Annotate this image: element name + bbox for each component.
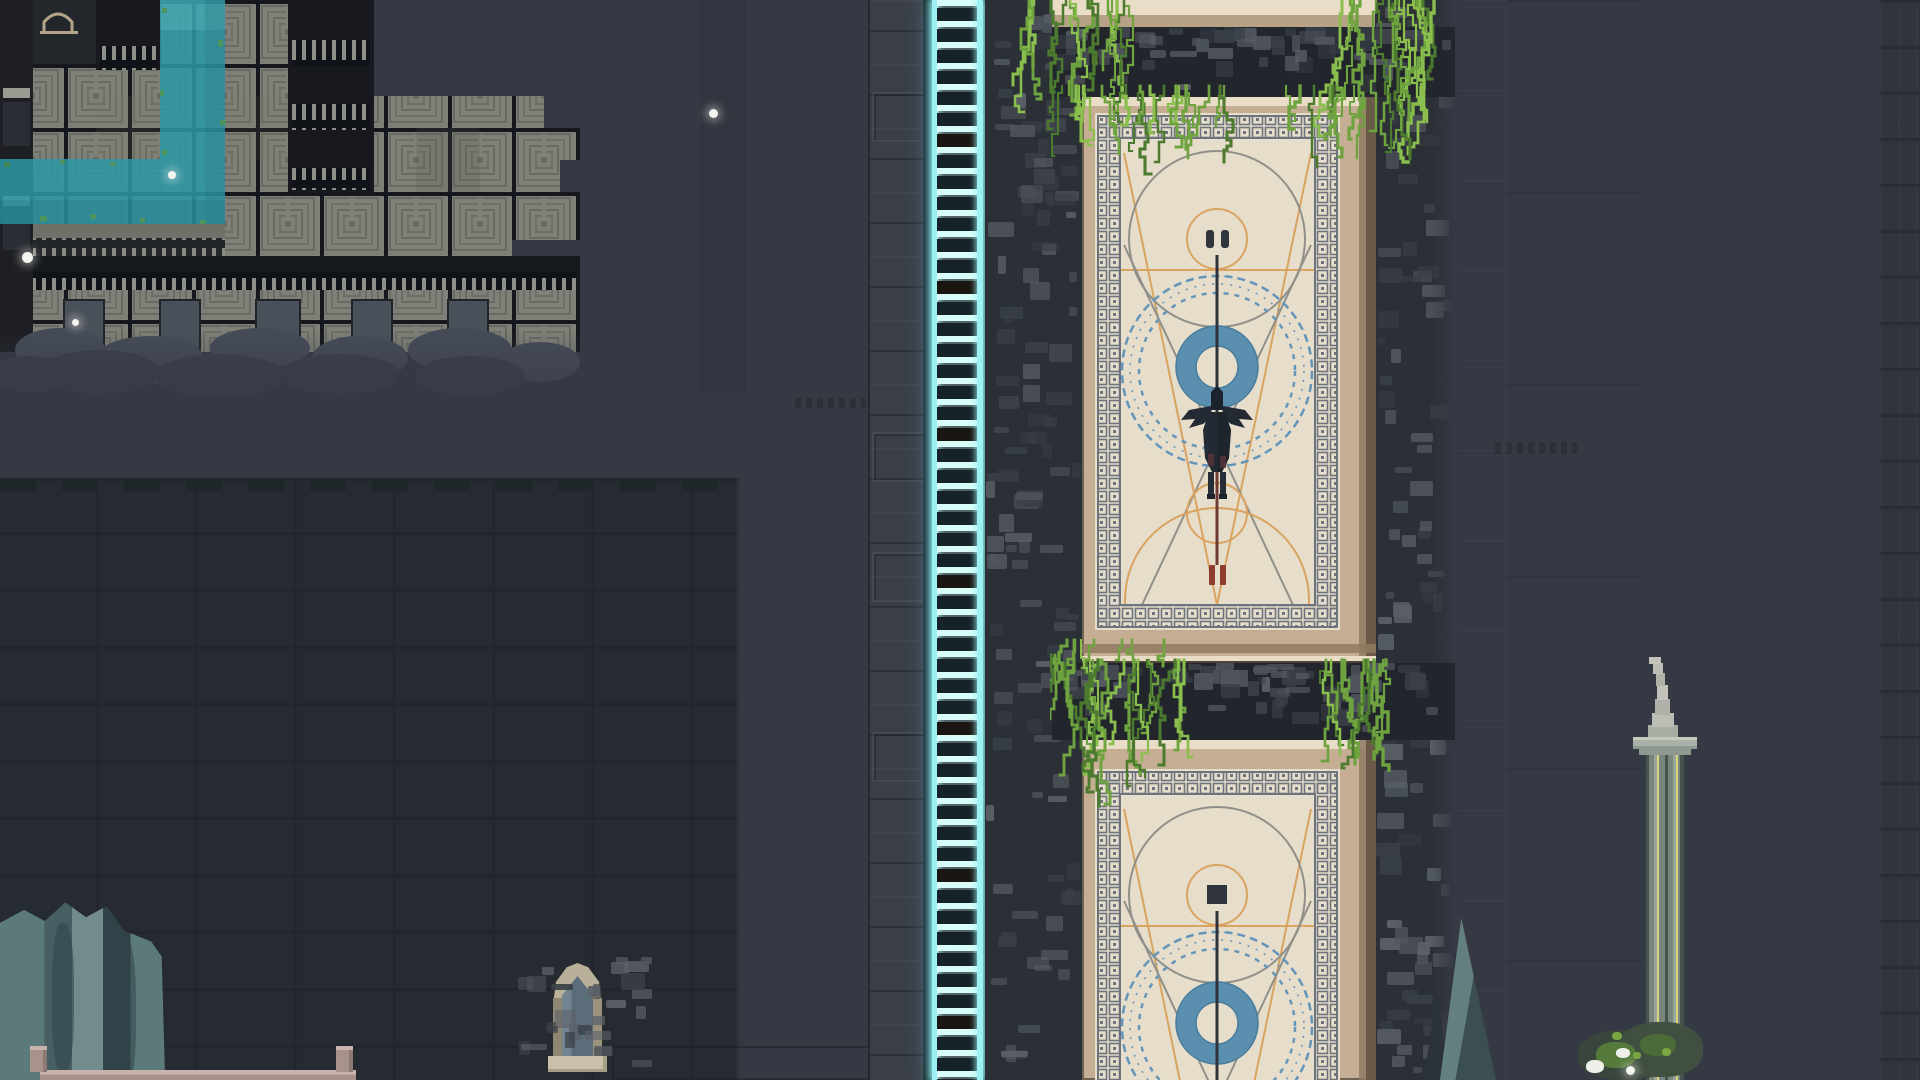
vine-strand: [1155, 86, 1164, 162]
white-flower: [1586, 1060, 1604, 1073]
cobble-stone: [1403, 242, 1417, 256]
cobble-stone: [1443, 300, 1455, 311]
cobble-stone: [1426, 302, 1444, 318]
vine-strand: [1370, 0, 1376, 131]
cobble-stone: [1048, 875, 1064, 882]
cobble-stone: [521, 1044, 547, 1050]
stone-railing: [40, 1070, 356, 1080]
cobble-stone: [1005, 447, 1027, 454]
cobble-stone: [1377, 1029, 1401, 1044]
ladder-dark-bands: [937, 0, 978, 1080]
hanging-vines: [1050, 635, 1470, 850]
cobble-stone: [1418, 942, 1430, 955]
vine-strand: [1116, 640, 1122, 660]
cobble-stone: [999, 396, 1019, 409]
cobble-stone: [1022, 203, 1034, 216]
cobble-stone: [994, 692, 1013, 704]
cobble-stone: [1006, 1045, 1016, 1062]
cobble-stone: [565, 1032, 575, 1048]
cobble-stone: [1032, 792, 1043, 798]
winged-character[interactable]: [1179, 384, 1255, 512]
cobble-stone: [1069, 272, 1077, 282]
cobble-stone: [1072, 463, 1081, 478]
cobble-stone: [1037, 210, 1050, 226]
cobble-stone: [1422, 285, 1445, 297]
cobble-stone: [1380, 857, 1402, 875]
cobble-stone: [1391, 349, 1401, 363]
cobble-stone: [1380, 376, 1392, 385]
cobble-stone: [1046, 916, 1063, 931]
cobble-stone: [1430, 405, 1449, 419]
cobble-stone: [636, 1006, 646, 1019]
statue: [1640, 655, 1692, 739]
vine-strand: [1188, 86, 1209, 158]
embossed-panel: [872, 92, 930, 142]
light-sprite[interactable]: [168, 171, 176, 179]
cobble-stone: [1379, 268, 1402, 283]
cobble-stone: [1433, 953, 1453, 967]
cobble-stone: [1005, 533, 1032, 542]
cobble-stone: [547, 1026, 558, 1033]
cobble-stone: [996, 649, 1012, 660]
vine-strand: [1106, 660, 1124, 744]
cobble-stone: [1012, 911, 1038, 919]
cobble-stone: [1018, 1025, 1040, 1033]
square-glyph: [1207, 885, 1227, 904]
embossed-panel: [872, 552, 930, 602]
cobble-stone: [1387, 972, 1414, 985]
cobble-stone: [1023, 268, 1039, 283]
cobble-stone: [621, 973, 645, 990]
light-sprite[interactable]: [72, 319, 79, 326]
cobble-stone: [1406, 995, 1433, 1004]
cobble-stone: [1377, 337, 1385, 345]
cobble-stone: [1378, 248, 1401, 257]
cobble-stone: [606, 1000, 626, 1008]
light-sprite[interactable]: [709, 109, 718, 118]
cobble-stone: [1067, 614, 1079, 620]
cobble-stone: [1058, 969, 1070, 980]
cobble-stone: [1427, 868, 1441, 881]
cobble-stone: [1389, 529, 1400, 540]
cobble-stone: [993, 738, 1012, 750]
cobble-stone: [1441, 884, 1450, 896]
cobble-stone: [990, 624, 1003, 636]
flowering-shrub: [1578, 1022, 1718, 1080]
cobble-stone: [1032, 242, 1059, 251]
cobble-stone: [1420, 521, 1432, 531]
cobble-stone: [1418, 266, 1439, 278]
faint-engraved-frame: [612, 1046, 906, 1080]
cobble-stone: [1040, 545, 1063, 553]
cobble-stone: [1061, 891, 1081, 905]
cobble-stone: [1424, 204, 1435, 213]
background-seam: [700, 0, 746, 392]
embossed-panel: [872, 732, 930, 782]
cobble-stone: [1392, 1056, 1405, 1067]
cobble-stone: [987, 536, 1004, 552]
cobble-stone: [1378, 617, 1392, 624]
cobble-stone: [1067, 863, 1080, 880]
cobble-stone: [993, 884, 1013, 894]
cobble-stone: [1426, 220, 1449, 236]
hanging-vines: [1005, 0, 1465, 200]
light-sprite[interactable]: [1626, 1066, 1635, 1075]
cobble-stone: [988, 222, 1014, 237]
cobble-stone: [1049, 344, 1072, 362]
cobble-stone: [1036, 661, 1051, 667]
glowing-ladder[interactable]: [932, 0, 983, 1080]
cobble-stone: [1054, 622, 1076, 631]
embossed-panel: [872, 432, 930, 482]
cobble-stone: [1428, 571, 1444, 577]
cobble-stone: [1020, 600, 1042, 607]
cobble-stone: [998, 469, 1018, 479]
cobble-stone: [1034, 965, 1052, 971]
cobble-stone: [998, 256, 1006, 274]
cobble-stone: [1380, 1021, 1393, 1029]
cobble-stone: [1030, 282, 1050, 300]
cobble-stone: [1417, 445, 1432, 453]
cobble-stone: [997, 711, 1012, 726]
cobble-stone: [1042, 443, 1052, 458]
cobble-stone: [994, 427, 1009, 433]
cobble-stone: [551, 984, 573, 990]
cobble-stone: [1443, 299, 1454, 308]
cobble-stone: [1066, 212, 1076, 218]
cobble-stone: [1413, 1067, 1422, 1073]
cobble-stone: [1379, 391, 1395, 408]
cobble-stone: [1004, 315, 1014, 323]
cobble-stone: [1404, 611, 1412, 619]
cobble-stone: [998, 937, 1017, 947]
cobble-stone: [542, 967, 554, 975]
grey-ruins: [0, 0, 580, 478]
background-panel-column: [1505, 0, 1642, 1080]
cobble-stone: [987, 554, 1007, 569]
ladder-rail: [977, 0, 983, 1080]
cobble-stone: [996, 376, 1019, 386]
faint-dash-marks: [795, 398, 865, 408]
column-capital-step: [1639, 749, 1691, 755]
cobble-stone: [641, 957, 652, 964]
vine-strand: [1158, 660, 1175, 765]
vine-strand: [1103, 0, 1111, 70]
cobble-stone: [1397, 1045, 1412, 1055]
cobble-stone: [1410, 481, 1433, 496]
cobble-stone: [588, 986, 600, 996]
vine-strand: [1158, 640, 1164, 666]
cobble-stone: [1023, 385, 1040, 402]
cobble-stone: [1387, 1010, 1410, 1020]
cobble-stone: [999, 514, 1014, 532]
cobble-stone: [991, 978, 1007, 985]
cobble-stone: [1046, 392, 1072, 405]
cobble-stone: [1016, 492, 1043, 500]
cobble-stone: [1378, 311, 1399, 328]
cobble-stone: [592, 1016, 605, 1025]
cobble-stone: [1385, 410, 1396, 424]
vine-strand: [1344, 660, 1350, 717]
cobble-stone: [1069, 307, 1077, 316]
cobble-stone: [1402, 535, 1416, 547]
cobble-stone: [1028, 414, 1051, 426]
cobble-stone: [1419, 582, 1437, 592]
cobble-stone: [986, 805, 994, 821]
game-scene: [0, 0, 1920, 1080]
vine-strand: [1220, 86, 1233, 162]
cobble-stone: [1050, 467, 1070, 476]
cobble-stone: [986, 481, 995, 498]
cobble-stone: [1417, 554, 1432, 564]
vine-strand: [1150, 86, 1154, 133]
railing-post: [30, 1046, 47, 1072]
cobble-stone: [1012, 560, 1028, 569]
background-edge-bricks: [1880, 0, 1920, 1080]
cobble-stone: [1023, 364, 1040, 379]
cobble-stone: [1386, 592, 1394, 599]
cobble-stone: [1395, 467, 1412, 473]
cobble-stone: [1027, 719, 1042, 733]
cobble-stone: [632, 989, 652, 999]
cobble-stone: [1025, 342, 1048, 353]
white-flower: [1616, 1048, 1630, 1058]
cobble-stone: [585, 1031, 611, 1040]
faint-dash-marks: [1495, 442, 1579, 454]
cobble-stone: [1411, 433, 1433, 442]
cobble-stone: [518, 977, 533, 990]
cobble-stone: [1020, 432, 1047, 444]
background-engravings: [1458, 0, 1506, 1080]
cave-rocks: [0, 893, 172, 1080]
cobble-stone: [1018, 683, 1042, 693]
cobble-stone: [997, 329, 1015, 344]
cobble-stone: [1393, 501, 1408, 513]
railing-post: [336, 1046, 353, 1072]
cobble-stone: [1006, 545, 1017, 552]
vine-strand: [1350, 86, 1356, 114]
light-sprite[interactable]: [22, 252, 33, 263]
cobble-stone: [594, 1046, 613, 1056]
cobble-stone: [1395, 927, 1408, 944]
cobble-stone: [1433, 594, 1442, 612]
